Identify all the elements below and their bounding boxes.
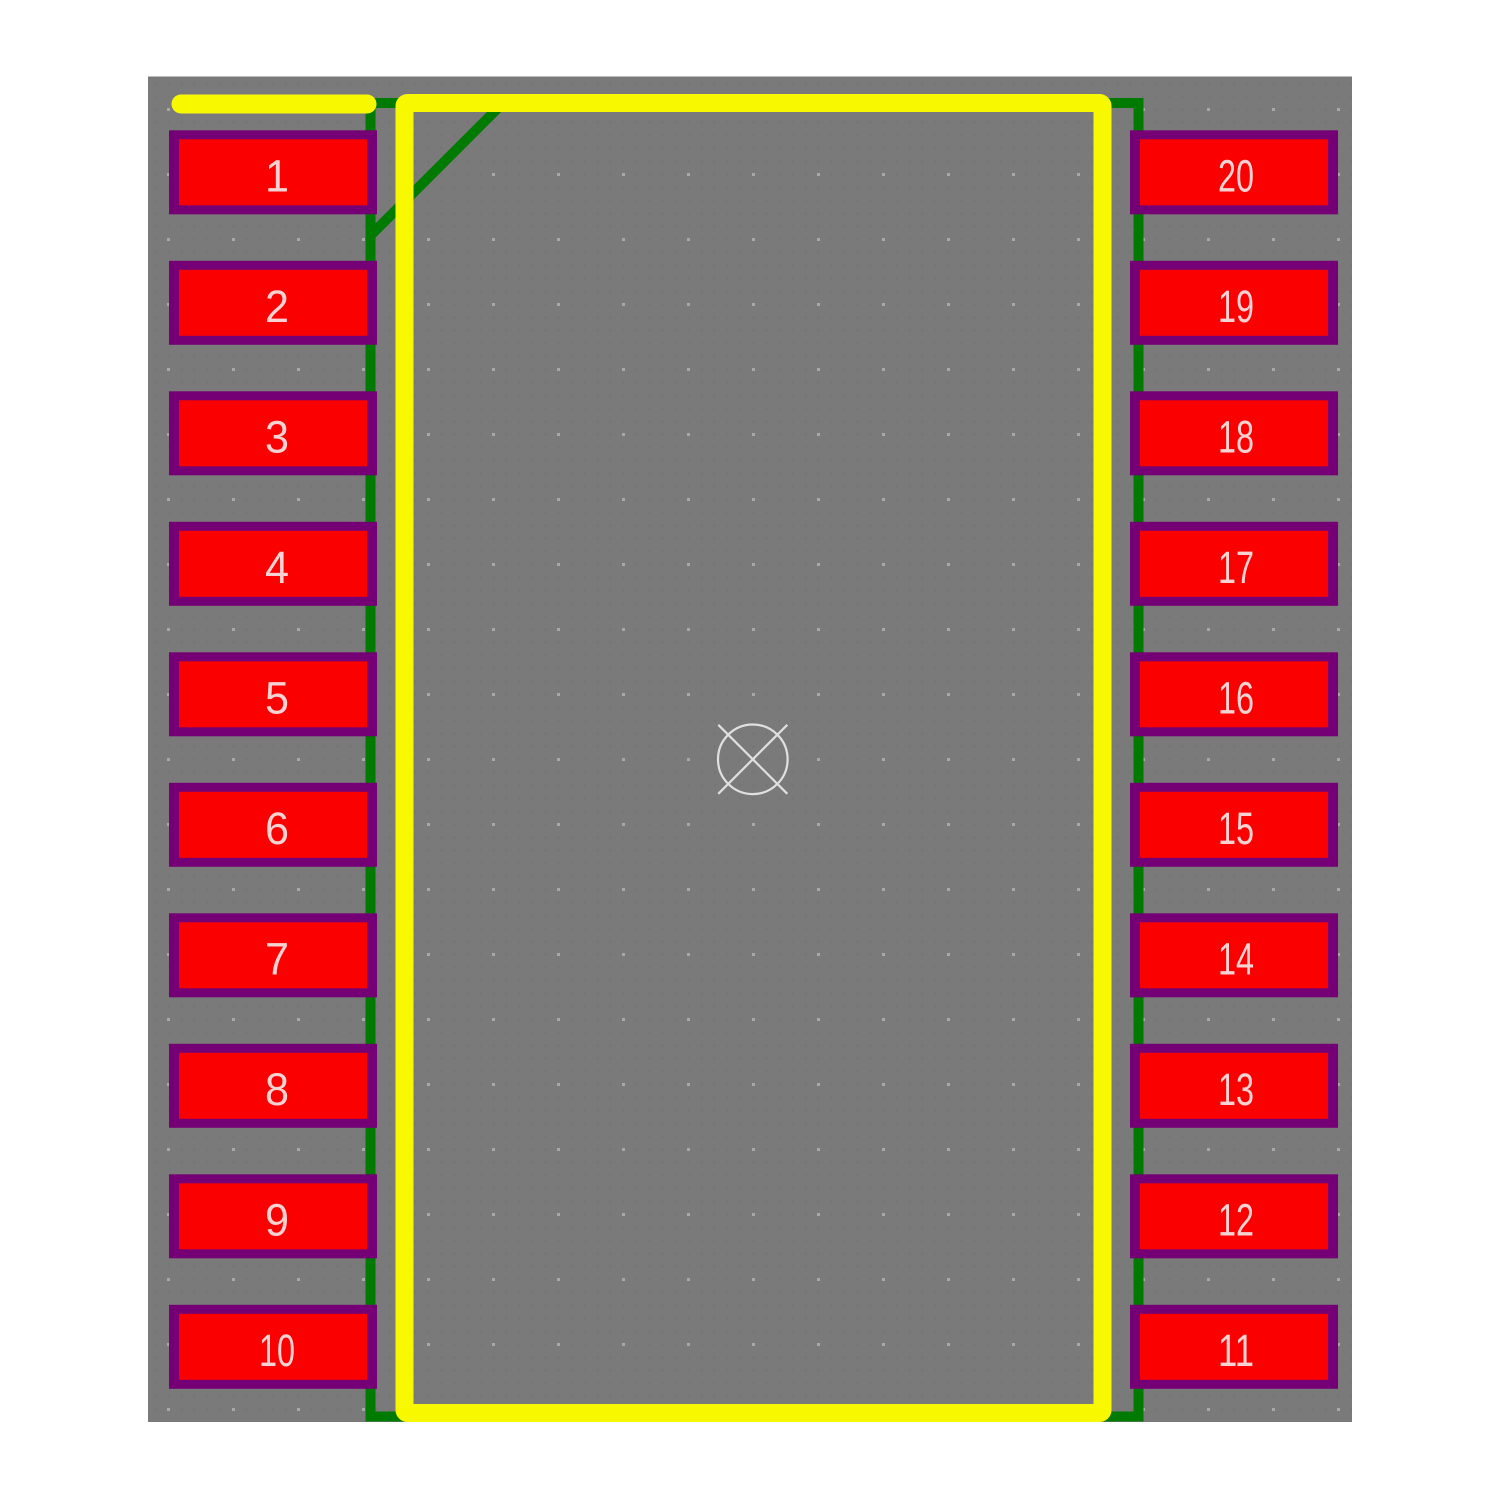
svg-text:6: 6	[265, 803, 289, 854]
svg-text:14: 14	[1218, 933, 1254, 984]
svg-text:20: 20	[1218, 150, 1254, 201]
svg-text:13: 13	[1218, 1064, 1254, 1115]
svg-text:11: 11	[1218, 1325, 1254, 1376]
svg-text:16: 16	[1218, 672, 1254, 723]
svg-text:5: 5	[265, 672, 289, 723]
svg-text:4: 4	[265, 542, 289, 593]
svg-text:10: 10	[259, 1325, 295, 1376]
svg-text:17: 17	[1218, 542, 1254, 593]
svg-text:3: 3	[265, 411, 289, 462]
svg-text:18: 18	[1218, 411, 1254, 462]
svg-text:7: 7	[265, 933, 289, 984]
svg-text:8: 8	[265, 1064, 289, 1115]
svg-text:9: 9	[265, 1194, 289, 1245]
svg-text:12: 12	[1218, 1194, 1254, 1245]
svg-text:2: 2	[265, 281, 289, 332]
svg-text:19: 19	[1218, 281, 1254, 332]
svg-text:15: 15	[1218, 803, 1254, 854]
svg-text:1: 1	[265, 150, 289, 201]
